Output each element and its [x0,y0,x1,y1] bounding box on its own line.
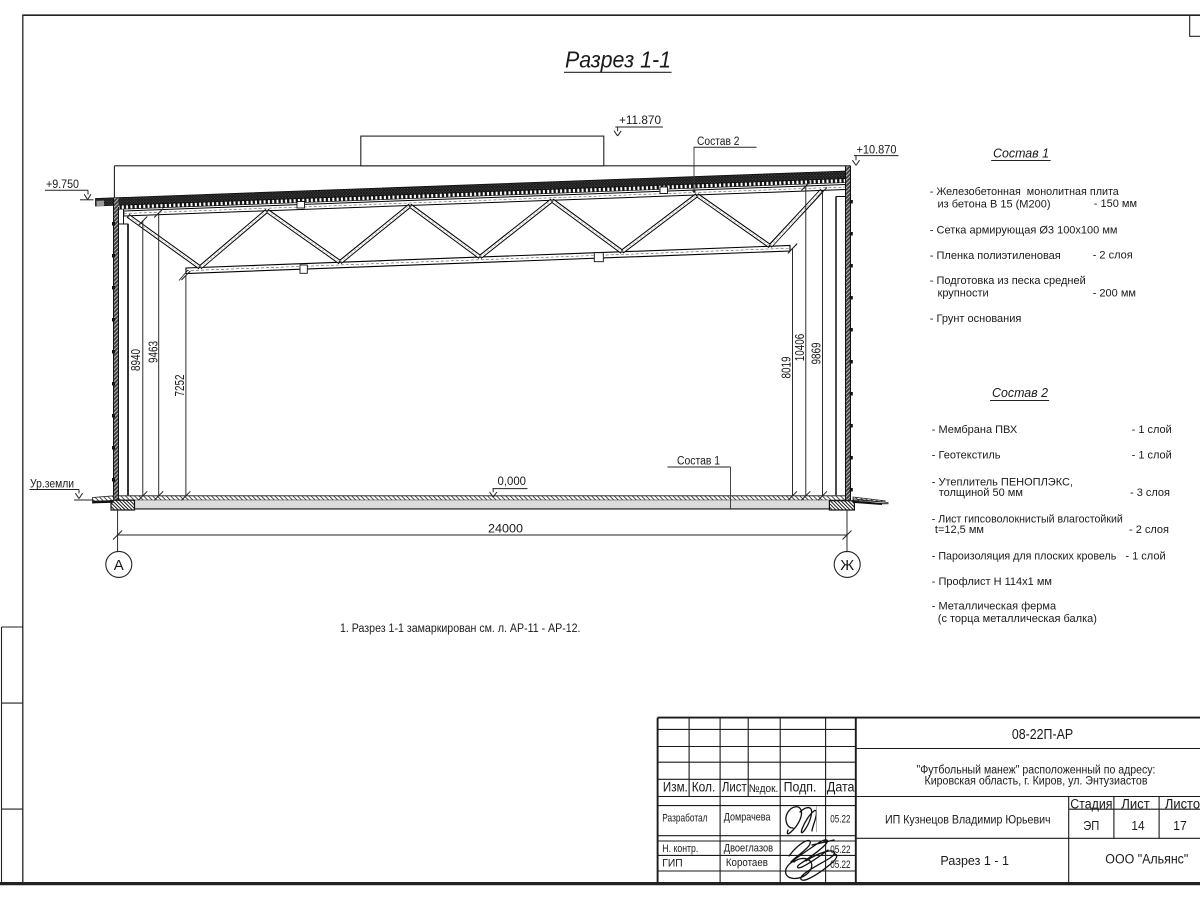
svg-text:- Грунт основания: - Грунт основания [930,313,1022,325]
svg-text:Разработал: Разработал [662,812,707,824]
svg-text:Состав 1: Состав 1 [993,146,1049,161]
svg-text:- Профлист Н 114х1 мм: - Профлист Н 114х1 мм [932,576,1052,588]
svg-text:0,000: 0,000 [498,476,527,488]
svg-text:Кировская область, г. Киров, у: Кировская область, г. Киров, ул. Энтузиа… [925,775,1148,787]
svg-text:из бетона В 15 (М200): из бетона В 15 (М200) [938,199,1051,211]
svg-text:+9.750: +9.750 [46,179,79,191]
svg-text:№док.: №док. [749,783,779,795]
svg-text:1. Разрез 1-1 замаркирован см.: 1. Разрез 1-1 замаркирован см. л. АР-11 … [340,623,581,635]
svg-text:крупности: крупности [938,288,989,300]
svg-text:Состав 2: Состав 2 [992,385,1049,400]
svg-text:+11.870: +11.870 [619,115,661,127]
svg-text:- Железобетонная монолитная п: - Железобетонная монолитная плита [930,186,1120,198]
svg-text:- 2 слоя: - 2 слоя [1093,250,1133,262]
svg-text:- 200 мм: - 200 мм [1093,287,1136,299]
svg-text:08-22П-АР: 08-22П-АР [1012,727,1073,743]
svg-text:Домрачева: Домрачева [724,812,771,824]
svg-text:ООО "Альянс": ООО "Альянс" [1105,852,1188,867]
svg-text:- 1 слой: - 1 слой [1132,450,1172,462]
svg-text:+10.870: +10.870 [857,145,897,157]
svg-text:9463: 9463 [145,341,160,363]
svg-text:- 150 мм: - 150 мм [1094,198,1137,210]
svg-text:ГИП: ГИП [662,858,682,870]
svg-text:ЭП: ЭП [1083,818,1099,833]
svg-text:10406: 10406 [792,334,807,362]
svg-text:толщиной 50 мм: толщиной 50 мм [939,487,1023,499]
svg-text:- Металлическая ферма: - Металлическая ферма [932,601,1057,613]
svg-text:ИП Кузнецов Владимир Юрьевич: ИП Кузнецов Владимир Юрьевич [885,813,1051,827]
svg-text:- Подготовка из песка средней: - Подготовка из песка средней [930,275,1086,287]
svg-text:Подп.: Подп. [784,780,817,795]
svg-text:А: А [114,557,124,574]
svg-text:- Геотекстиль: - Геотекстиль [932,450,1001,462]
svg-text:Состав 2: Состав 2 [697,136,740,148]
svg-text:7252: 7252 [172,375,187,397]
svg-text:Н. контр.: Н. контр. [662,843,698,855]
svg-text:- Мембрана ПВХ: - Мембрана ПВХ [932,424,1018,436]
svg-text:t=12,5 мм: t=12,5 мм [935,524,984,536]
svg-text:Кол.: Кол. [692,780,716,795]
svg-text:8940: 8940 [128,349,143,371]
svg-text:14: 14 [1131,818,1144,833]
svg-text:Дата: Дата [827,780,855,795]
svg-text:9869: 9869 [809,343,824,365]
svg-text:Двоеглазов: Двоеглазов [724,843,773,855]
svg-text:- 2 слоя: - 2 слоя [1129,524,1169,536]
svg-text:24000: 24000 [488,522,523,536]
svg-text:Лист: Лист [1121,796,1150,811]
svg-text:(с торца металлическая балка): (с торца металлическая балка) [938,613,1097,625]
svg-text:- Пленка полиэтиленовая: - Пленка полиэтиленовая [930,250,1061,262]
svg-text:- 3 слоя: - 3 слоя [1130,487,1170,499]
svg-text:Лист: Лист [722,780,747,795]
svg-text:Ур.земли: Ур.земли [30,479,74,491]
svg-text:05.22: 05.22 [830,859,850,871]
svg-text:- Сетка армирующая Ø3 100х100: - Сетка армирующая Ø3 100х100 мм [930,224,1118,236]
svg-text:Изм.: Изм. [663,780,688,795]
svg-text:17: 17 [1173,818,1187,833]
svg-text:- 1 слой: - 1 слой [1125,551,1165,563]
svg-text:Разрез 1-1: Разрез 1-1 [565,47,671,73]
svg-text:Разрез 1 - 1: Разрез 1 - 1 [940,854,1009,868]
svg-text:- 1 слой: - 1 слой [1132,424,1172,436]
svg-text:- Пароизоляция для плоских кро: - Пароизоляция для плоских кровель [932,551,1117,563]
svg-text:05.22: 05.22 [830,814,850,826]
svg-text:Коротаев: Коротаев [726,857,768,869]
svg-text:Листов: Листов [1165,796,1200,811]
svg-text:Стадия: Стадия [1070,796,1112,811]
svg-text:Ж: Ж [840,557,854,574]
svg-text:Состав 1: Состав 1 [677,456,720,468]
